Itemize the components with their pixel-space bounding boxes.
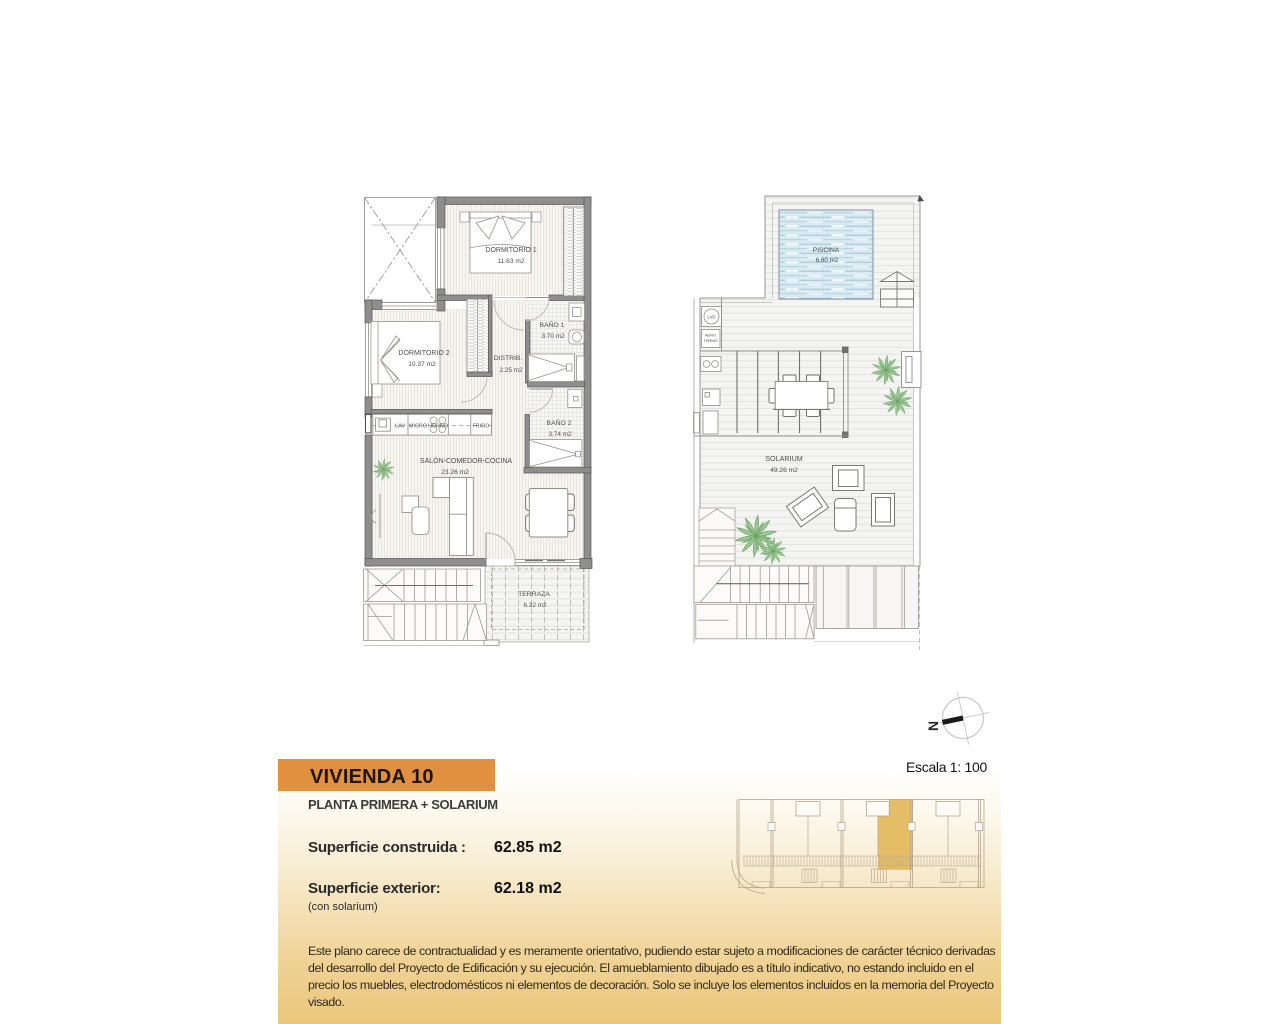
svg-text:23.26 m2: 23.26 m2: [441, 469, 469, 476]
svg-text:MICRO: MICRO: [409, 424, 427, 430]
svg-text:LAV: LAV: [395, 424, 405, 430]
svg-text:FRIGO: FRIGO: [472, 424, 489, 430]
svg-text:6.60 m2: 6.60 m2: [816, 257, 839, 264]
svg-text:10.37 m2: 10.37 m2: [408, 361, 436, 368]
svg-text:BAÑO 2: BAÑO 2: [547, 418, 572, 427]
svg-text:HORNO: HORNO: [428, 424, 448, 430]
svg-text:BAÑO 1: BAÑO 1: [540, 320, 565, 329]
svg-text:DORMITORIO 1: DORMITORIO 1: [485, 247, 536, 254]
svg-text:SOLARIUM: SOLARIUM: [765, 454, 803, 463]
svg-text:3.70 m2: 3.70 m2: [541, 333, 565, 340]
svg-text:TERRAZA: TERRAZA: [518, 591, 550, 598]
svg-text:AERO: AERO: [705, 333, 716, 338]
svg-text:SALÓN-COMEDOR-COCINA: SALÓN-COMEDOR-COCINA: [420, 456, 513, 465]
svg-text:3.74 m2: 3.74 m2: [548, 431, 572, 438]
svg-text:N: N: [925, 721, 941, 731]
svg-text:LVD: LVD: [707, 315, 715, 320]
svg-text:49.26 m2: 49.26 m2: [770, 467, 798, 474]
svg-text:PISCINA: PISCINA: [813, 247, 840, 254]
svg-text:TERMO: TERMO: [703, 338, 717, 343]
svg-text:DISTRIB.: DISTRIB.: [494, 355, 523, 362]
svg-text:DORMITORIO 2: DORMITORIO 2: [398, 350, 449, 357]
svg-text:6.32 m2: 6.32 m2: [523, 602, 547, 609]
svg-text:11.63 m2: 11.63 m2: [497, 258, 524, 265]
svg-text:2.25 m2: 2.25 m2: [499, 367, 523, 374]
